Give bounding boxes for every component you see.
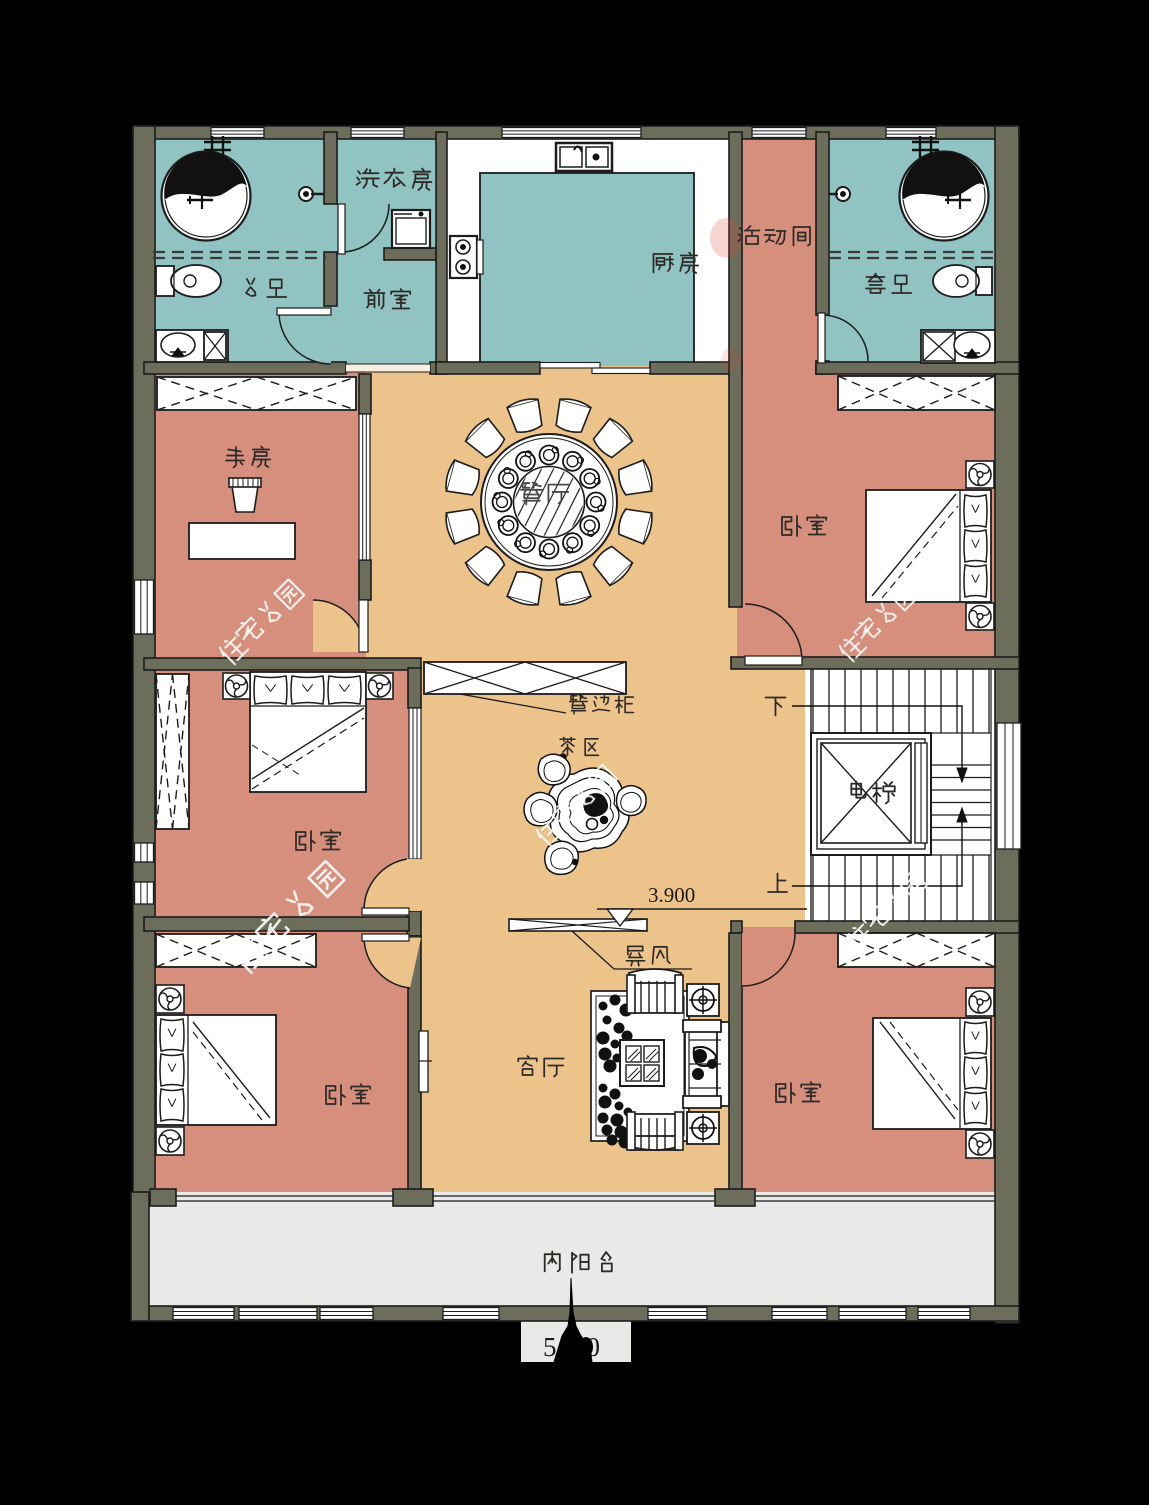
svg-text:3.900: 3.900: [648, 883, 695, 907]
svg-text:5: 5: [543, 1332, 557, 1362]
